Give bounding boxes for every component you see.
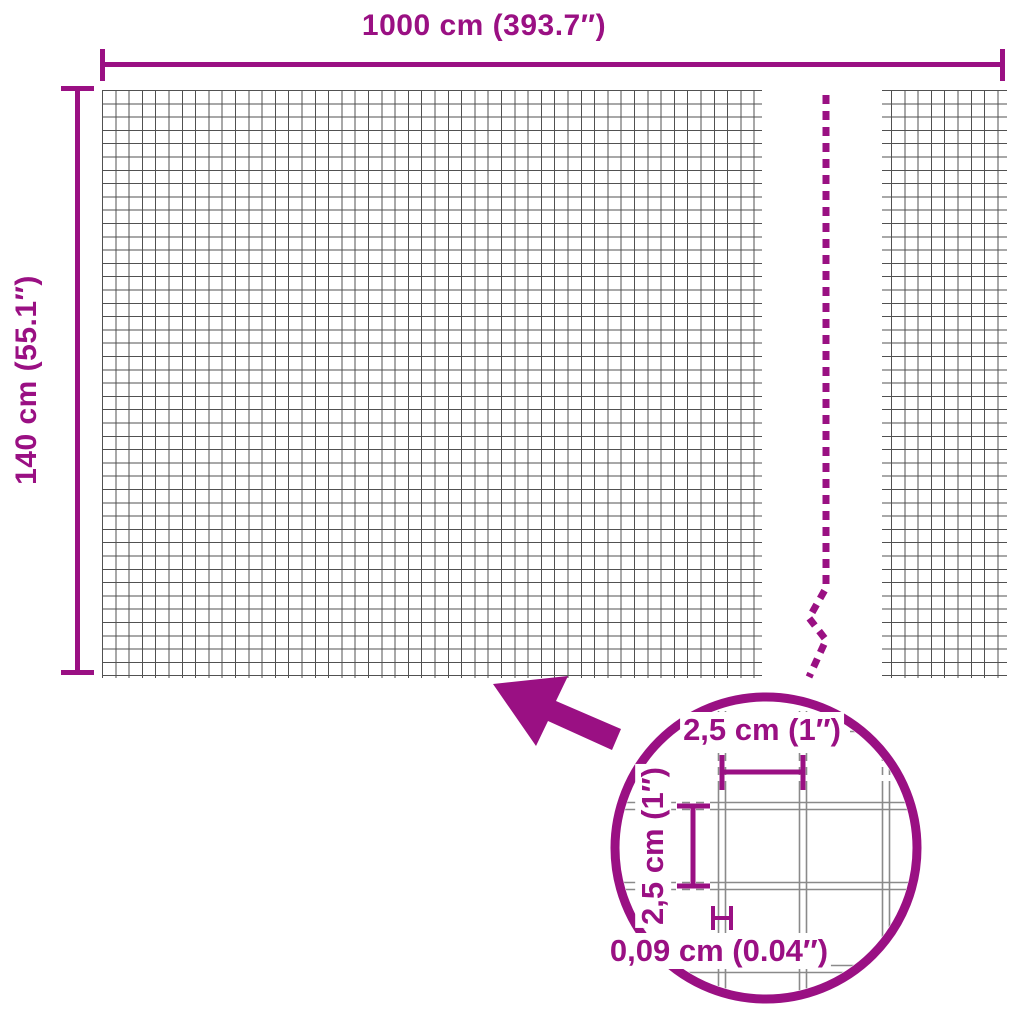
mesh-height-label: 2,5 cm (1″) <box>635 764 671 928</box>
mesh-height-dimension-mark <box>677 806 710 886</box>
wire-thickness-marker <box>713 906 731 930</box>
arrow-icon <box>493 676 621 750</box>
wire-thickness-label: 0,09 cm (0.04″) <box>607 933 831 969</box>
mesh-width-label: 2,5 cm (1″) <box>680 712 844 748</box>
mesh-width-dimension-mark <box>722 755 803 790</box>
product-dimension-diagram: 1000 cm (393.7″) 140 cm (55.1″) <box>0 0 1024 1024</box>
panel-break-line <box>809 95 826 677</box>
diagram-overlay <box>0 0 1024 1024</box>
